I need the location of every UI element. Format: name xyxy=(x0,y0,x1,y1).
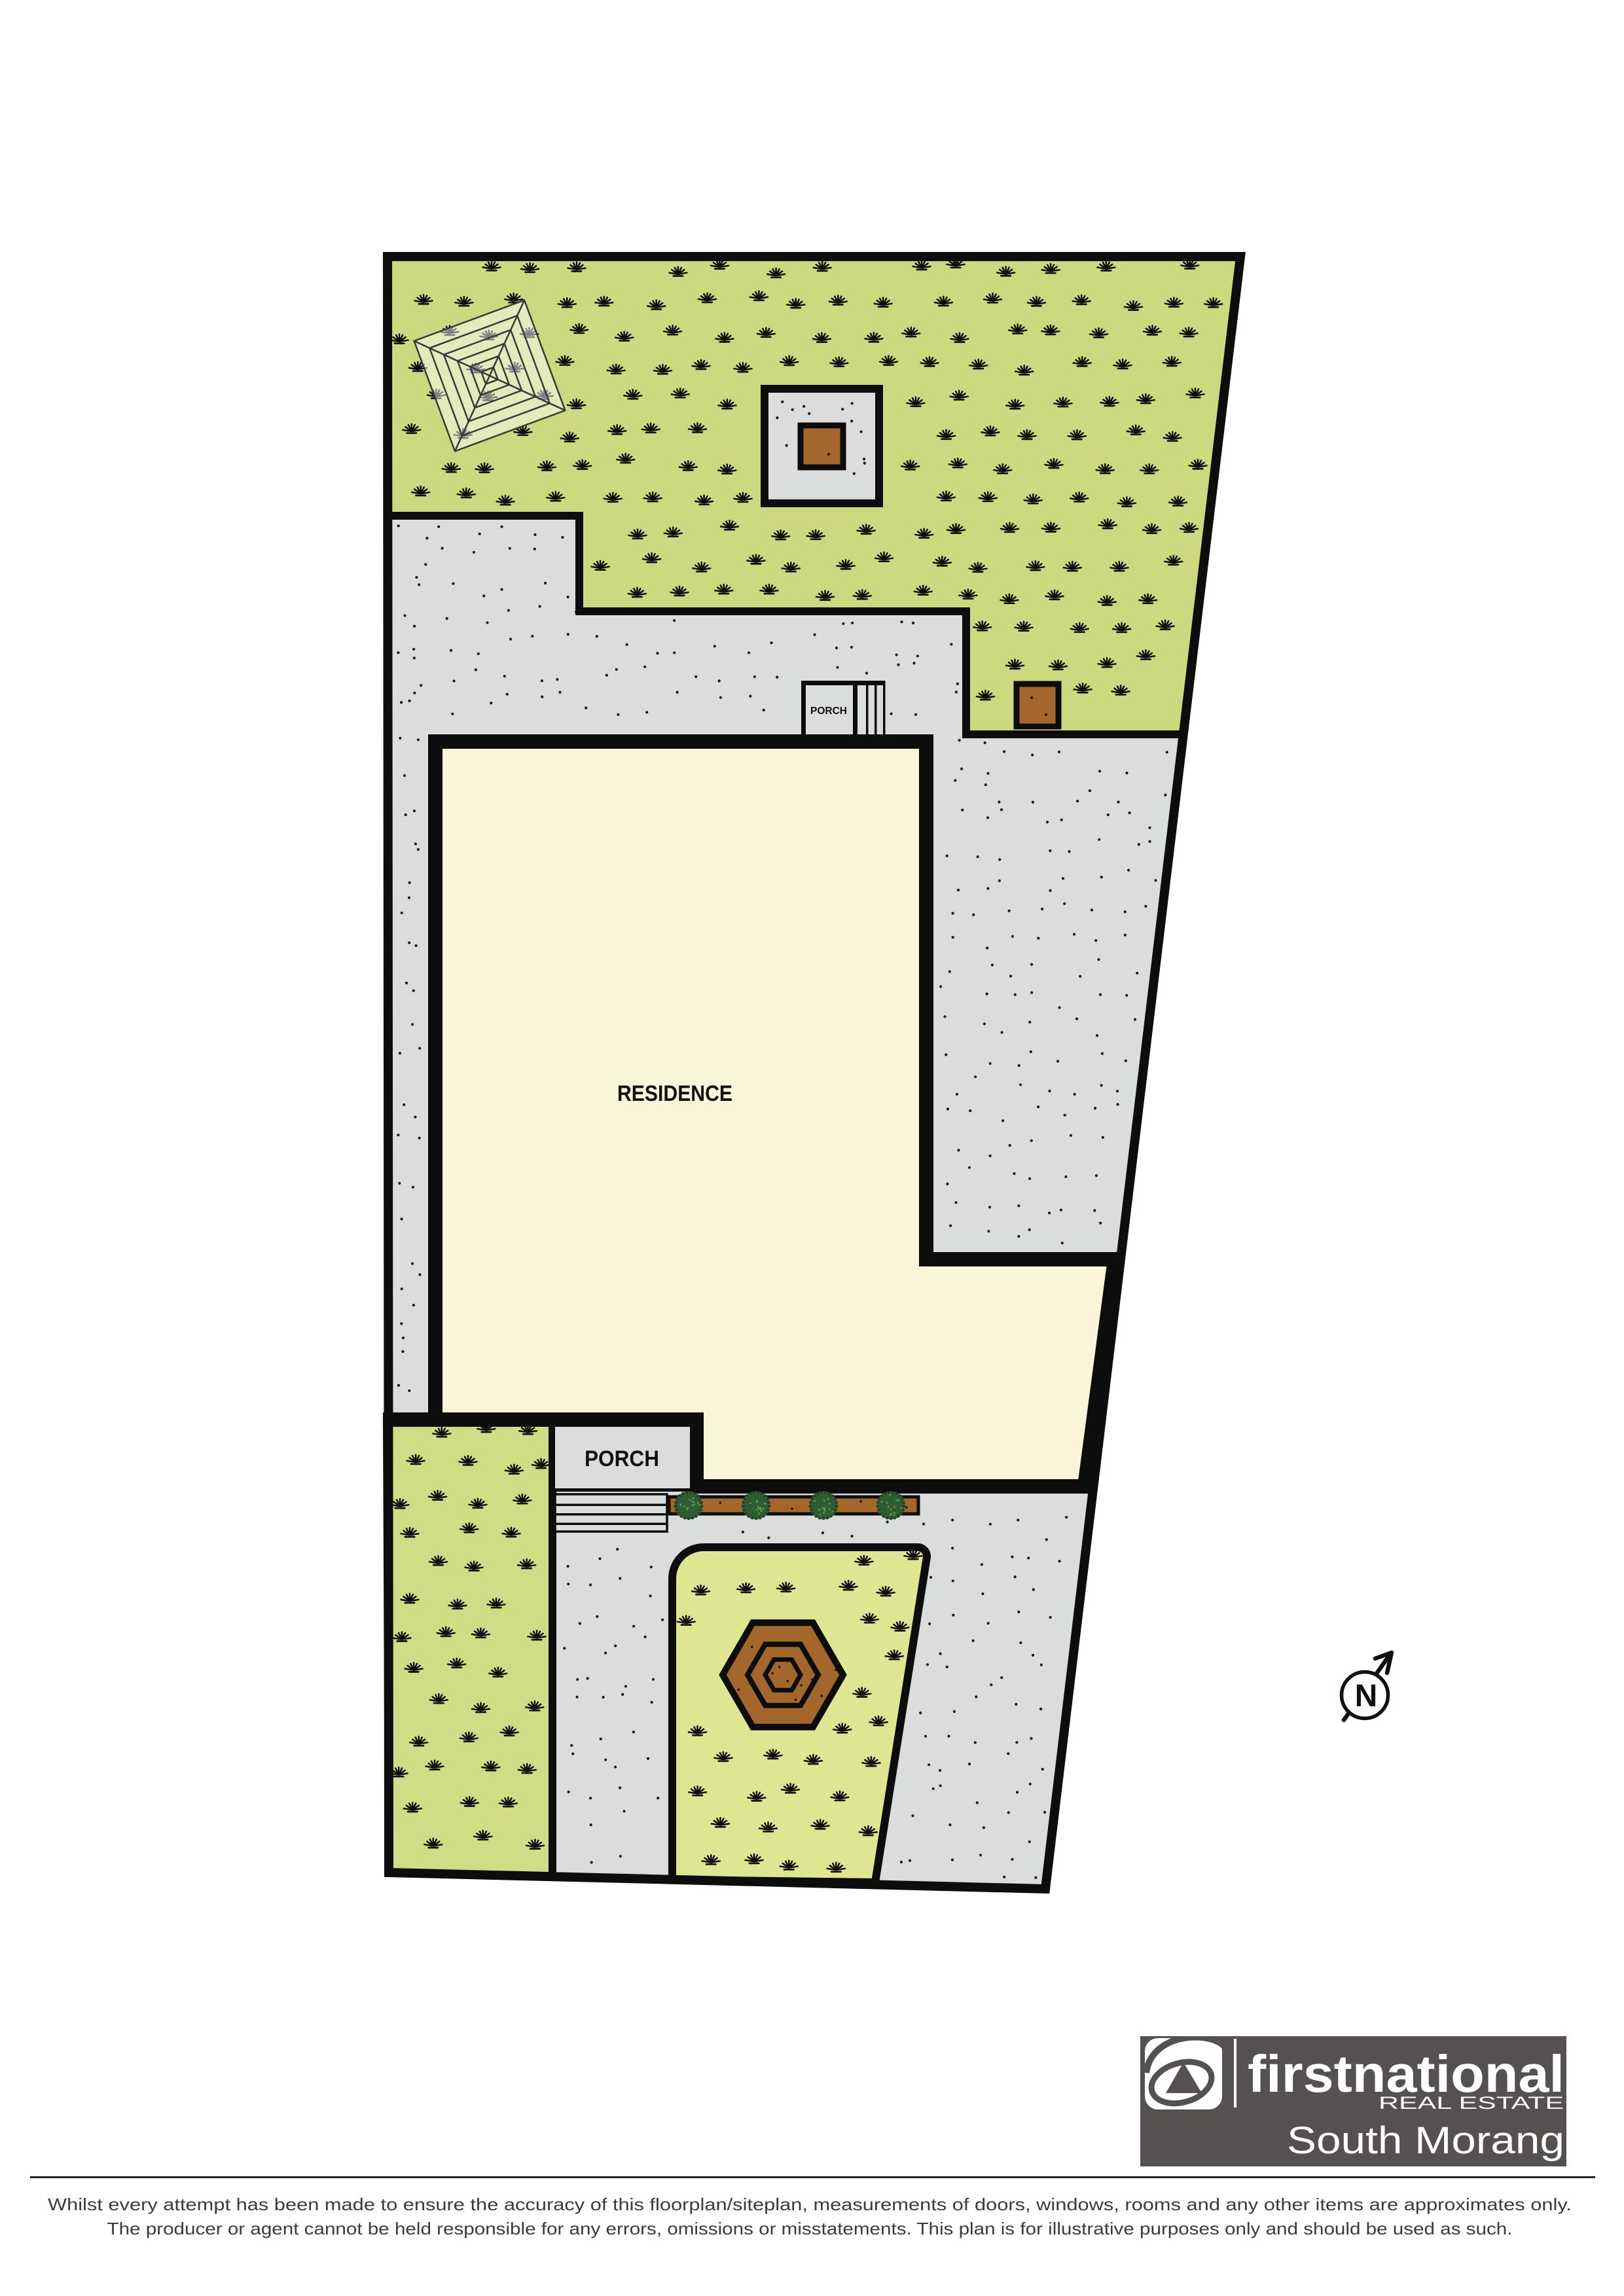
svg-text:The producer or agent cannot b: The producer or agent cannot be held res… xyxy=(107,2219,1513,2238)
svg-text:RESIDENCE: RESIDENCE xyxy=(617,1081,732,1106)
svg-text:N: N xyxy=(1355,1679,1378,1713)
svg-text:PORCH: PORCH xyxy=(585,1446,659,1471)
svg-text:PORCH: PORCH xyxy=(810,706,847,717)
svg-text:REAL ESTATE: REAL ESTATE xyxy=(1379,2093,1564,2113)
svg-text:South Morang: South Morang xyxy=(1287,2119,1564,2162)
svg-text:Whilst every attempt has been: Whilst every attempt has been made to en… xyxy=(48,2195,1572,2214)
